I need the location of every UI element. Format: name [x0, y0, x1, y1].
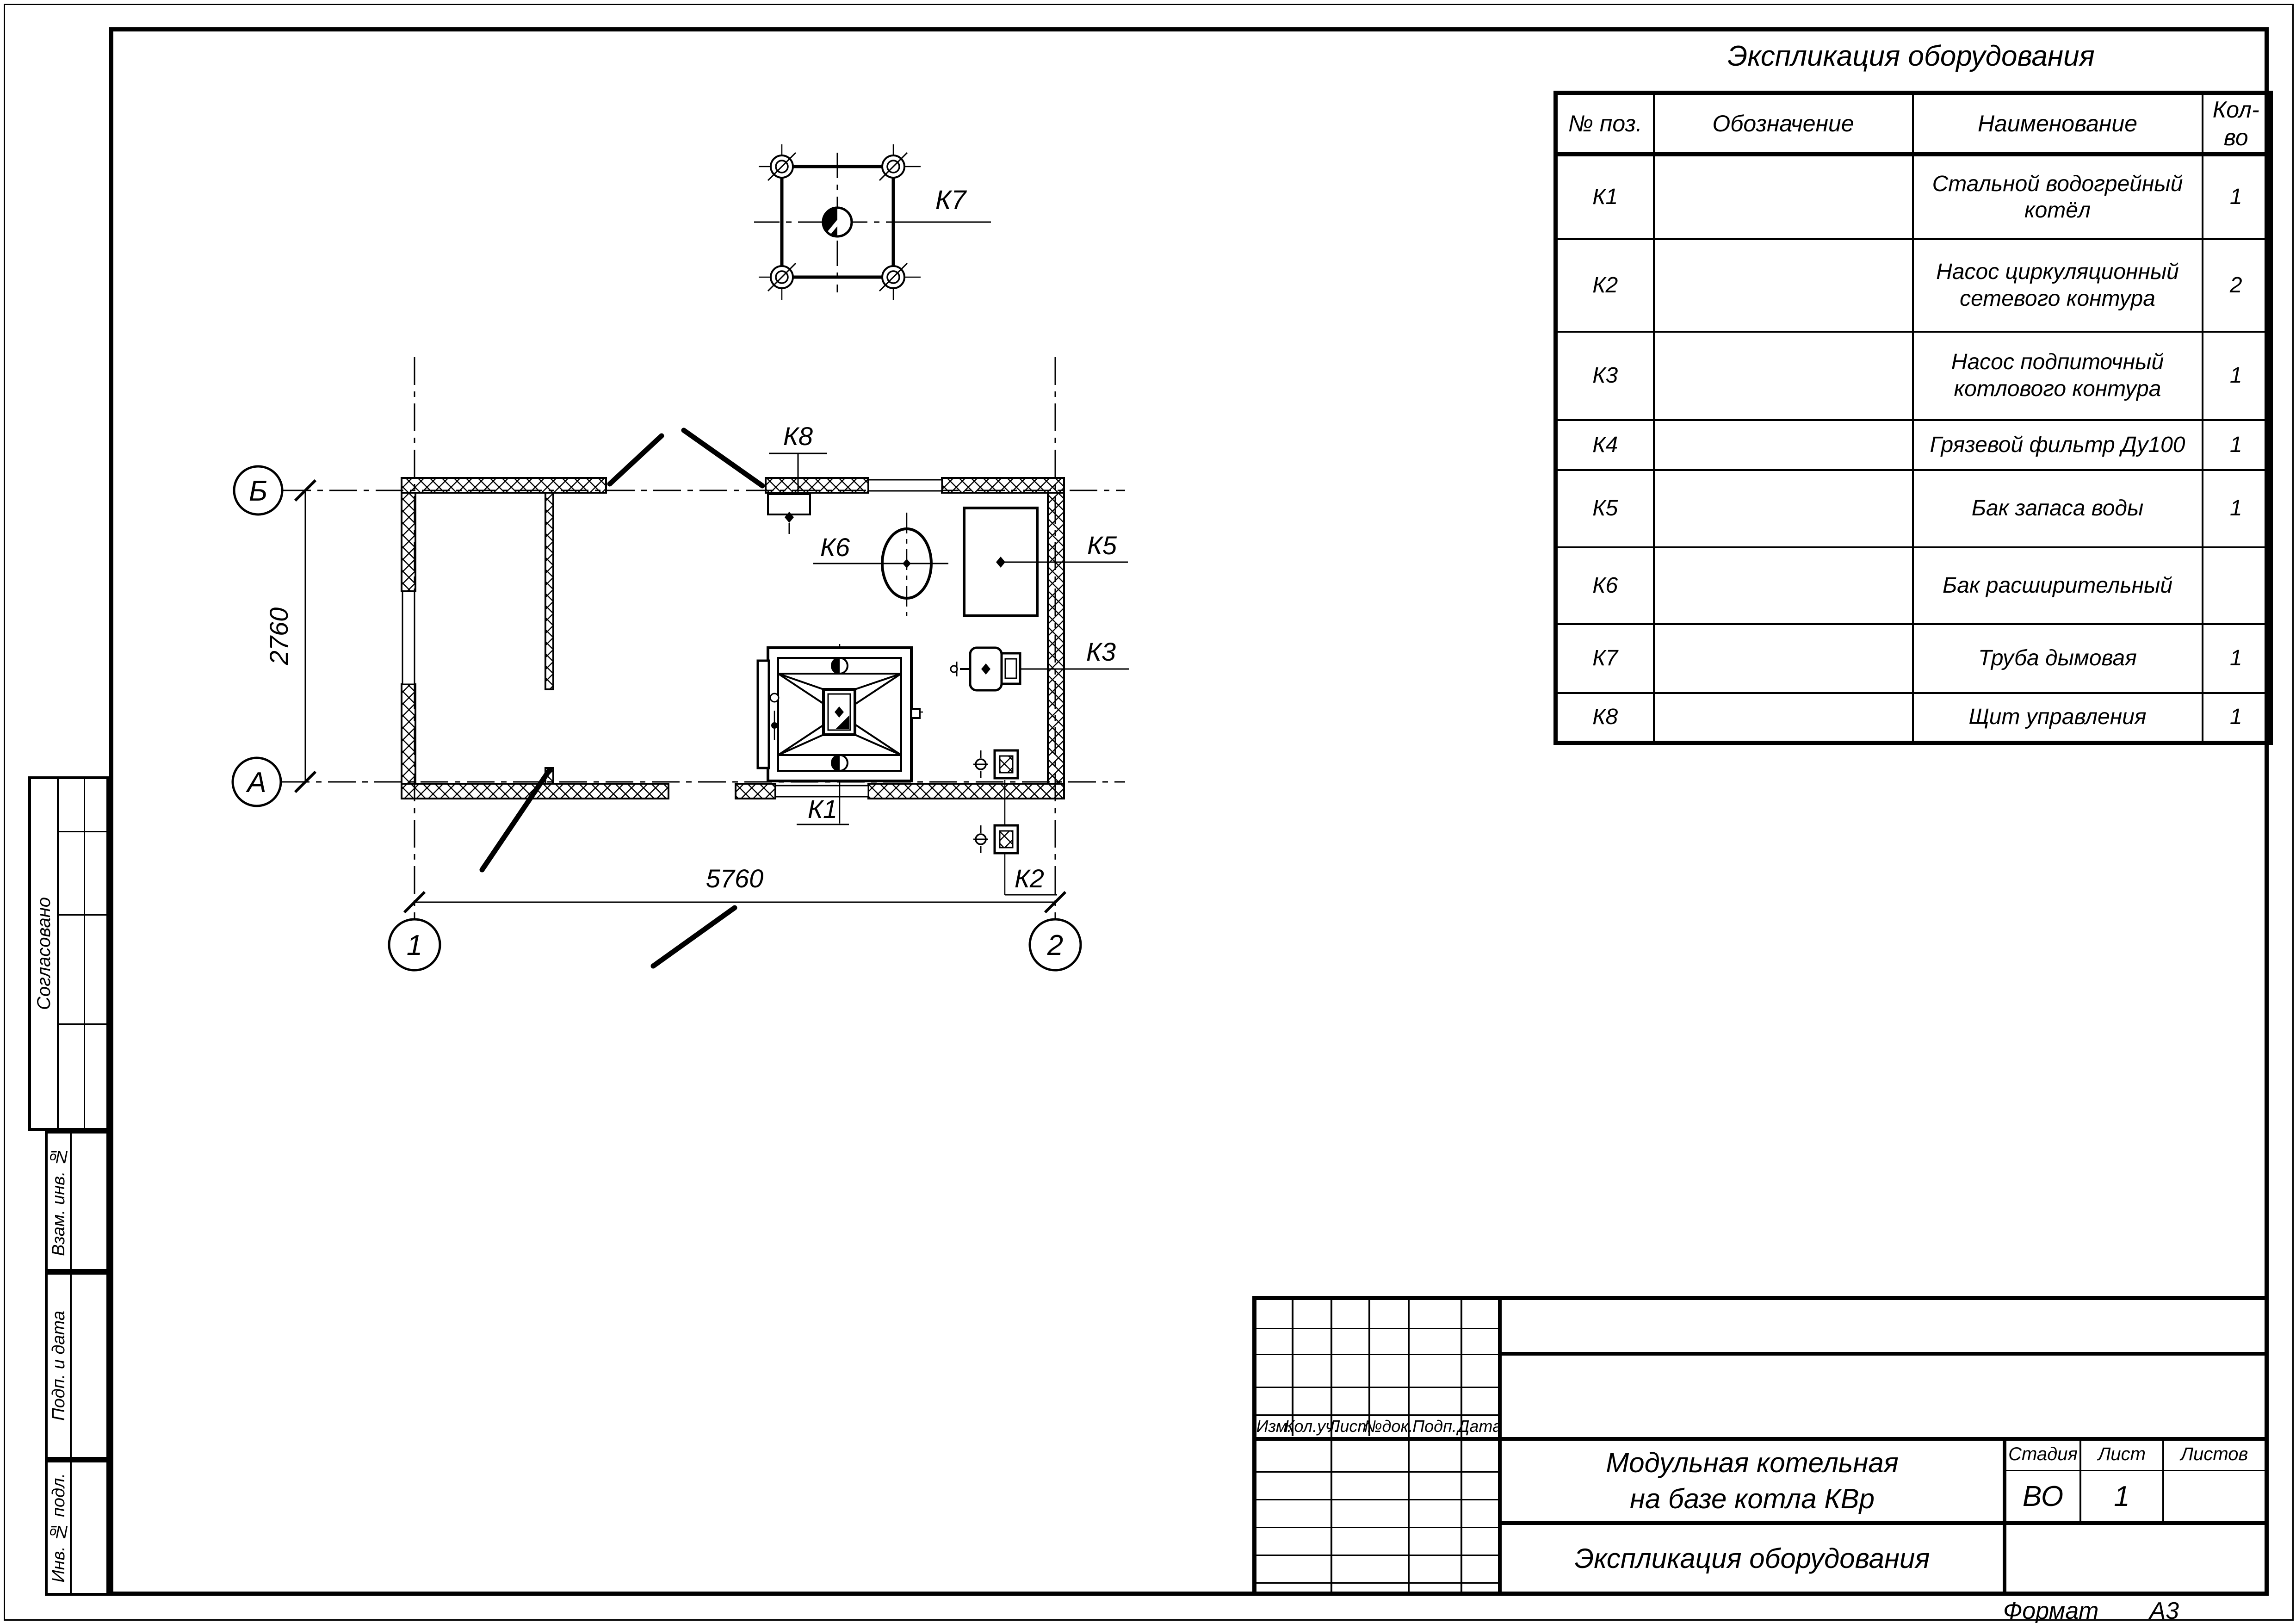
- rev-header-koluch: Кол.уч.: [1293, 1414, 1331, 1438]
- equipment-table: № поз. Обозначение Наименование Кол-во К…: [1553, 91, 2273, 745]
- table-row: К5 Бак запаса воды 1: [1556, 470, 2271, 547]
- cell-name: Насос подпиточный котлового контура: [1913, 332, 2203, 420]
- table-row: К6 Бак расширительный: [1556, 547, 2271, 624]
- project-title-line1: Модульная котельная: [1606, 1445, 1899, 1481]
- cell-pos: К6: [1556, 547, 1654, 624]
- tag-k1: К1: [808, 794, 837, 824]
- tag-k5: К5: [1087, 531, 1117, 560]
- cell-name: Бак запаса воды: [1913, 470, 2203, 547]
- tag-k2: К2: [1015, 864, 1044, 893]
- axis-label-b: Б: [249, 475, 267, 507]
- wall-left-lower: [402, 684, 415, 784]
- agreed-label-cell: Согласовано: [31, 779, 59, 1128]
- cell-qty: 1: [2203, 420, 2271, 470]
- table-header-row: № поз. Обозначение Наименование Кол-во: [1556, 93, 2271, 155]
- cell-designation: [1654, 547, 1913, 624]
- floor-plan: 2760 5760 Б А 1 2: [208, 130, 1157, 999]
- format-label: Формат: [2003, 1597, 2098, 1623]
- table-row: К3 Насос подпиточный котлового контура 1: [1556, 332, 2271, 420]
- drawing-sheet: Экспликация оборудования № поз. Обозначе…: [0, 0, 2296, 1623]
- cell-qty: 2: [2203, 239, 2271, 332]
- col-header-qty: Кол-во: [2203, 93, 2271, 155]
- axis-label-a: А: [245, 767, 266, 799]
- tag-k3: К3: [1086, 637, 1116, 666]
- equipment-table-title: Экспликация оборудования: [1553, 40, 2269, 72]
- cell-qty: 1: [2203, 693, 2271, 743]
- table-row: К1 Стальной водогрейный котёл 1: [1556, 155, 2271, 239]
- door-leaf-top-right: [684, 430, 762, 486]
- col-header-designation: Обозначение: [1654, 93, 1913, 155]
- project-title-line2: на базе котла КВр: [1630, 1481, 1875, 1517]
- cell-pos: К4: [1556, 420, 1654, 470]
- sheets-value: [2164, 1471, 2265, 1521]
- wall-top-right: [942, 478, 1064, 493]
- sheet-title: Экспликация оборудования: [1502, 1525, 2003, 1592]
- axis-bubble-labels: Б А 1 2: [245, 475, 1063, 961]
- tag-k6: К6: [820, 533, 850, 562]
- col-header-pos: № поз.: [1556, 93, 1654, 155]
- cell-pos: К8: [1556, 693, 1654, 743]
- dim-width: 5760: [706, 864, 764, 893]
- cell-designation: [1654, 420, 1913, 470]
- cell-designation: [1654, 332, 1913, 420]
- replacement-inv-label-cell: Взам. инв. №: [48, 1134, 72, 1269]
- wall-bottom-mid: [736, 784, 775, 799]
- partition-wall: [545, 493, 553, 689]
- wall-top-left: [402, 478, 606, 493]
- cell-name: Грязевой фильтр Ду100: [1913, 420, 2203, 470]
- cell-pos: К3: [1556, 332, 1654, 420]
- stage-value: ВО: [2006, 1471, 2079, 1521]
- table-row: К2 Насос циркуляционный сетевого контура…: [1556, 239, 2271, 332]
- cell-name: Стальной водогрейный котёл: [1913, 155, 2203, 239]
- replacement-inv-block: Взам. инв. №: [45, 1131, 109, 1272]
- stage-label: Стадия: [2006, 1439, 2079, 1470]
- wall-top-mid: [766, 478, 868, 493]
- expansion-tank-k6: К6: [813, 513, 948, 616]
- agreed-block: Согласовано: [28, 776, 109, 1131]
- cell-qty: 1: [2203, 470, 2271, 547]
- pump-k2-2: [973, 825, 1018, 853]
- cell-name: Бак расширительный: [1913, 547, 2203, 624]
- inventory-original-label: Инв. № подл.: [49, 1473, 69, 1583]
- cell-pos: К2: [1556, 239, 1654, 332]
- signature-date-block: Подп. и дата: [45, 1272, 109, 1460]
- inventory-original-block: Инв. № подл.: [45, 1460, 109, 1596]
- pump-k3: К3: [951, 637, 1129, 690]
- axis-label-2: 2: [1047, 929, 1063, 961]
- sheet-label: Лист: [2081, 1439, 2162, 1470]
- agreed-label: Согласовано: [34, 897, 55, 1010]
- cell-designation: [1654, 155, 1913, 239]
- cell-designation: [1654, 693, 1913, 743]
- dimensions: 2760 5760: [264, 480, 1065, 912]
- signature-date-label-cell: Подп. и дата: [48, 1275, 72, 1457]
- signature-date-label: Подп. и дата: [49, 1311, 69, 1421]
- cell-qty: 1: [2203, 332, 2271, 420]
- wall-bottom-right: [868, 784, 1064, 799]
- cell-name: Щит управления: [1913, 693, 2203, 743]
- tag-k7: К7: [935, 185, 967, 215]
- rev-header-ndok: №док.: [1369, 1414, 1408, 1438]
- axis-label-1: 1: [407, 929, 422, 961]
- cell-qty: [2203, 547, 2271, 624]
- water-tank-k5: К5: [964, 508, 1128, 616]
- table-row: К7 Труба дымовая 1: [1556, 624, 2271, 693]
- chimney-detail: К7: [754, 144, 991, 300]
- rev-header-list: Лист: [1331, 1414, 1368, 1438]
- cell-pos: К7: [1556, 624, 1654, 693]
- project-title: Модульная котельная на базе котла КВр: [1502, 1441, 2003, 1521]
- replacement-inv-label: Взам. инв. №: [49, 1147, 69, 1256]
- cell-name: Труба дымовая: [1913, 624, 2203, 693]
- pumps-k2: К2: [973, 750, 1057, 895]
- door-leaf-bottom: [653, 908, 735, 966]
- wall-left-upper: [402, 493, 415, 591]
- pump-k2-1: [973, 750, 1018, 778]
- cell-pos: К1: [1556, 155, 1654, 239]
- table-row: К8 Щит управления 1: [1556, 693, 2271, 743]
- wall-right: [1048, 493, 1064, 784]
- cell-qty: 1: [2203, 624, 2271, 693]
- door-leaf-top-left: [610, 436, 662, 484]
- rev-header-data: Дата: [1461, 1414, 1498, 1438]
- axis-bubbles: [233, 466, 1081, 970]
- format-note: Формат А3: [1920, 1597, 2262, 1623]
- sheets-label: Листов: [2164, 1439, 2265, 1470]
- window-top: [868, 480, 942, 491]
- inventory-original-label-cell: Инв. № подл.: [48, 1462, 72, 1593]
- cell-name: Насос циркуляционный сетевого контура: [1913, 239, 2203, 332]
- format-value: А3: [2149, 1597, 2179, 1623]
- cell-designation: [1654, 470, 1913, 547]
- window-left: [402, 591, 415, 684]
- cell-qty: 1: [2203, 155, 2271, 239]
- title-block: Изм. Кол.уч. Лист №док. Подп. Дата Модул…: [1252, 1296, 2269, 1596]
- cell-designation: [1654, 624, 1913, 693]
- cell-pos: К5: [1556, 470, 1654, 547]
- dim-height: 2760: [264, 607, 293, 666]
- cell-designation: [1654, 239, 1913, 332]
- sheet-value: 1: [2081, 1471, 2162, 1521]
- rev-header-podp: Подп.: [1409, 1414, 1461, 1438]
- col-header-name: Наименование: [1913, 93, 2203, 155]
- tag-k8: К8: [783, 421, 813, 451]
- table-row: К4 Грязевой фильтр Ду100 1: [1556, 420, 2271, 470]
